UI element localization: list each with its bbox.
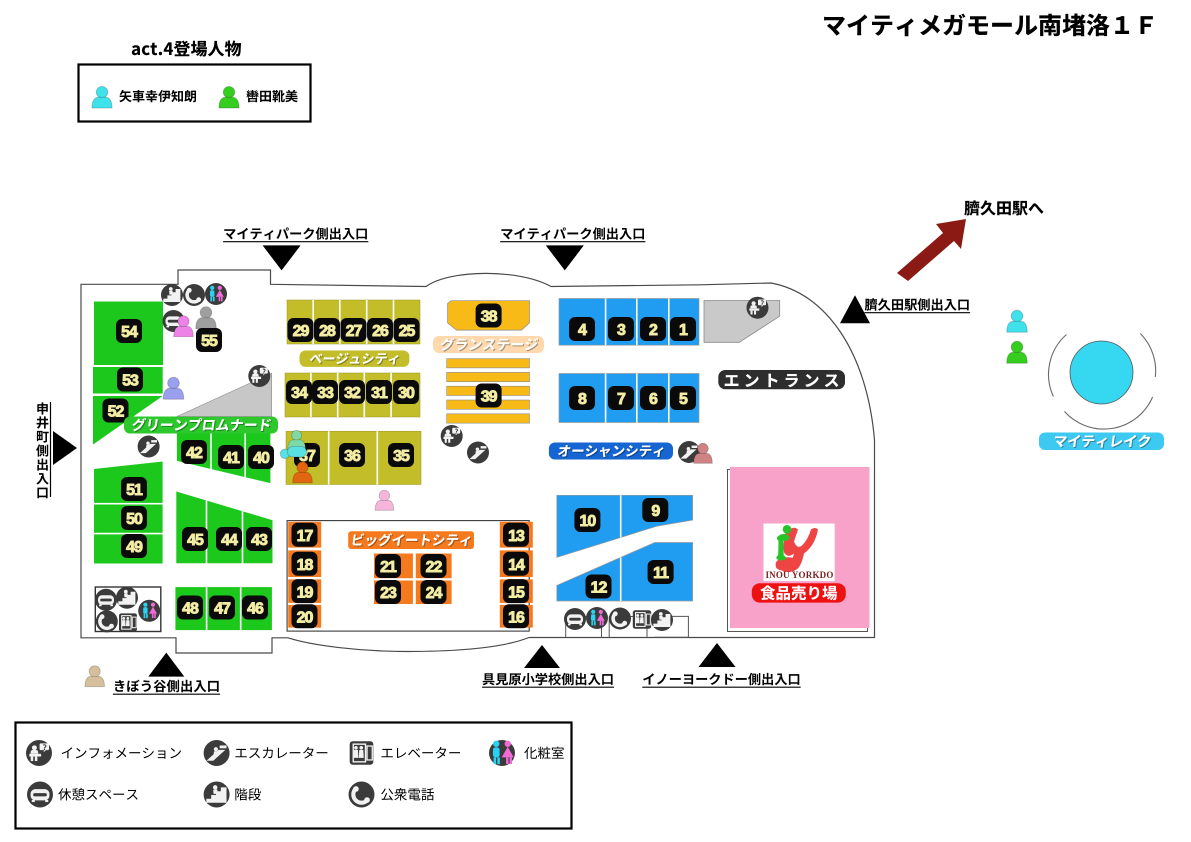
svg-text:2: 2 — [649, 322, 658, 339]
svg-text:46: 46 — [247, 601, 264, 618]
svg-text:43: 43 — [251, 532, 268, 549]
svg-text:39: 39 — [481, 389, 498, 406]
svg-text:17: 17 — [297, 528, 314, 545]
svg-text:INOU YORKDO: INOU YORKDO — [765, 570, 833, 580]
svg-text:31: 31 — [371, 385, 388, 402]
svg-text:11: 11 — [653, 565, 669, 582]
svg-text:12: 12 — [591, 580, 608, 597]
svg-text:1: 1 — [679, 322, 688, 339]
svg-text:55: 55 — [201, 333, 218, 350]
svg-text:44: 44 — [221, 532, 238, 549]
svg-text:22: 22 — [426, 559, 443, 576]
svg-text:41: 41 — [223, 450, 240, 467]
svg-text:26: 26 — [372, 323, 389, 340]
svg-text:5: 5 — [679, 391, 688, 408]
svg-text:8: 8 — [578, 391, 587, 408]
svg-text:6: 6 — [649, 391, 658, 408]
svg-text:24: 24 — [426, 585, 443, 602]
svg-text:38: 38 — [481, 309, 498, 326]
svg-text:50: 50 — [126, 511, 143, 528]
svg-text:21: 21 — [380, 559, 397, 576]
svg-text:42: 42 — [186, 445, 203, 462]
svg-text:23: 23 — [380, 585, 397, 602]
svg-text:10: 10 — [580, 513, 597, 530]
svg-text:14: 14 — [508, 557, 525, 574]
svg-text:53: 53 — [122, 373, 139, 390]
svg-text:33: 33 — [317, 385, 334, 402]
svg-text:20: 20 — [297, 609, 314, 626]
svg-text:3: 3 — [617, 322, 626, 339]
svg-text:29: 29 — [293, 323, 310, 340]
svg-text:47: 47 — [214, 601, 231, 618]
svg-text:36: 36 — [344, 448, 361, 465]
svg-text:9: 9 — [651, 503, 660, 520]
svg-text:49: 49 — [126, 539, 143, 556]
svg-text:40: 40 — [253, 450, 270, 467]
svg-text:30: 30 — [398, 385, 415, 402]
svg-text:25: 25 — [399, 323, 416, 340]
svg-text:7: 7 — [617, 391, 626, 408]
svg-text:52: 52 — [108, 404, 125, 421]
svg-text:35: 35 — [393, 448, 410, 465]
svg-text:18: 18 — [297, 557, 314, 574]
svg-text:51: 51 — [126, 482, 143, 499]
svg-text:45: 45 — [187, 532, 204, 549]
svg-text:27: 27 — [346, 323, 363, 340]
svg-text:4: 4 — [578, 322, 587, 339]
svg-text:13: 13 — [508, 528, 525, 545]
svg-text:16: 16 — [508, 609, 525, 626]
svg-text:48: 48 — [182, 601, 199, 618]
svg-text:34: 34 — [291, 385, 308, 402]
svg-text:28: 28 — [319, 323, 336, 340]
svg-text:15: 15 — [508, 584, 525, 601]
svg-text:19: 19 — [297, 584, 314, 601]
svg-text:32: 32 — [344, 385, 361, 402]
svg-text:54: 54 — [121, 324, 138, 341]
